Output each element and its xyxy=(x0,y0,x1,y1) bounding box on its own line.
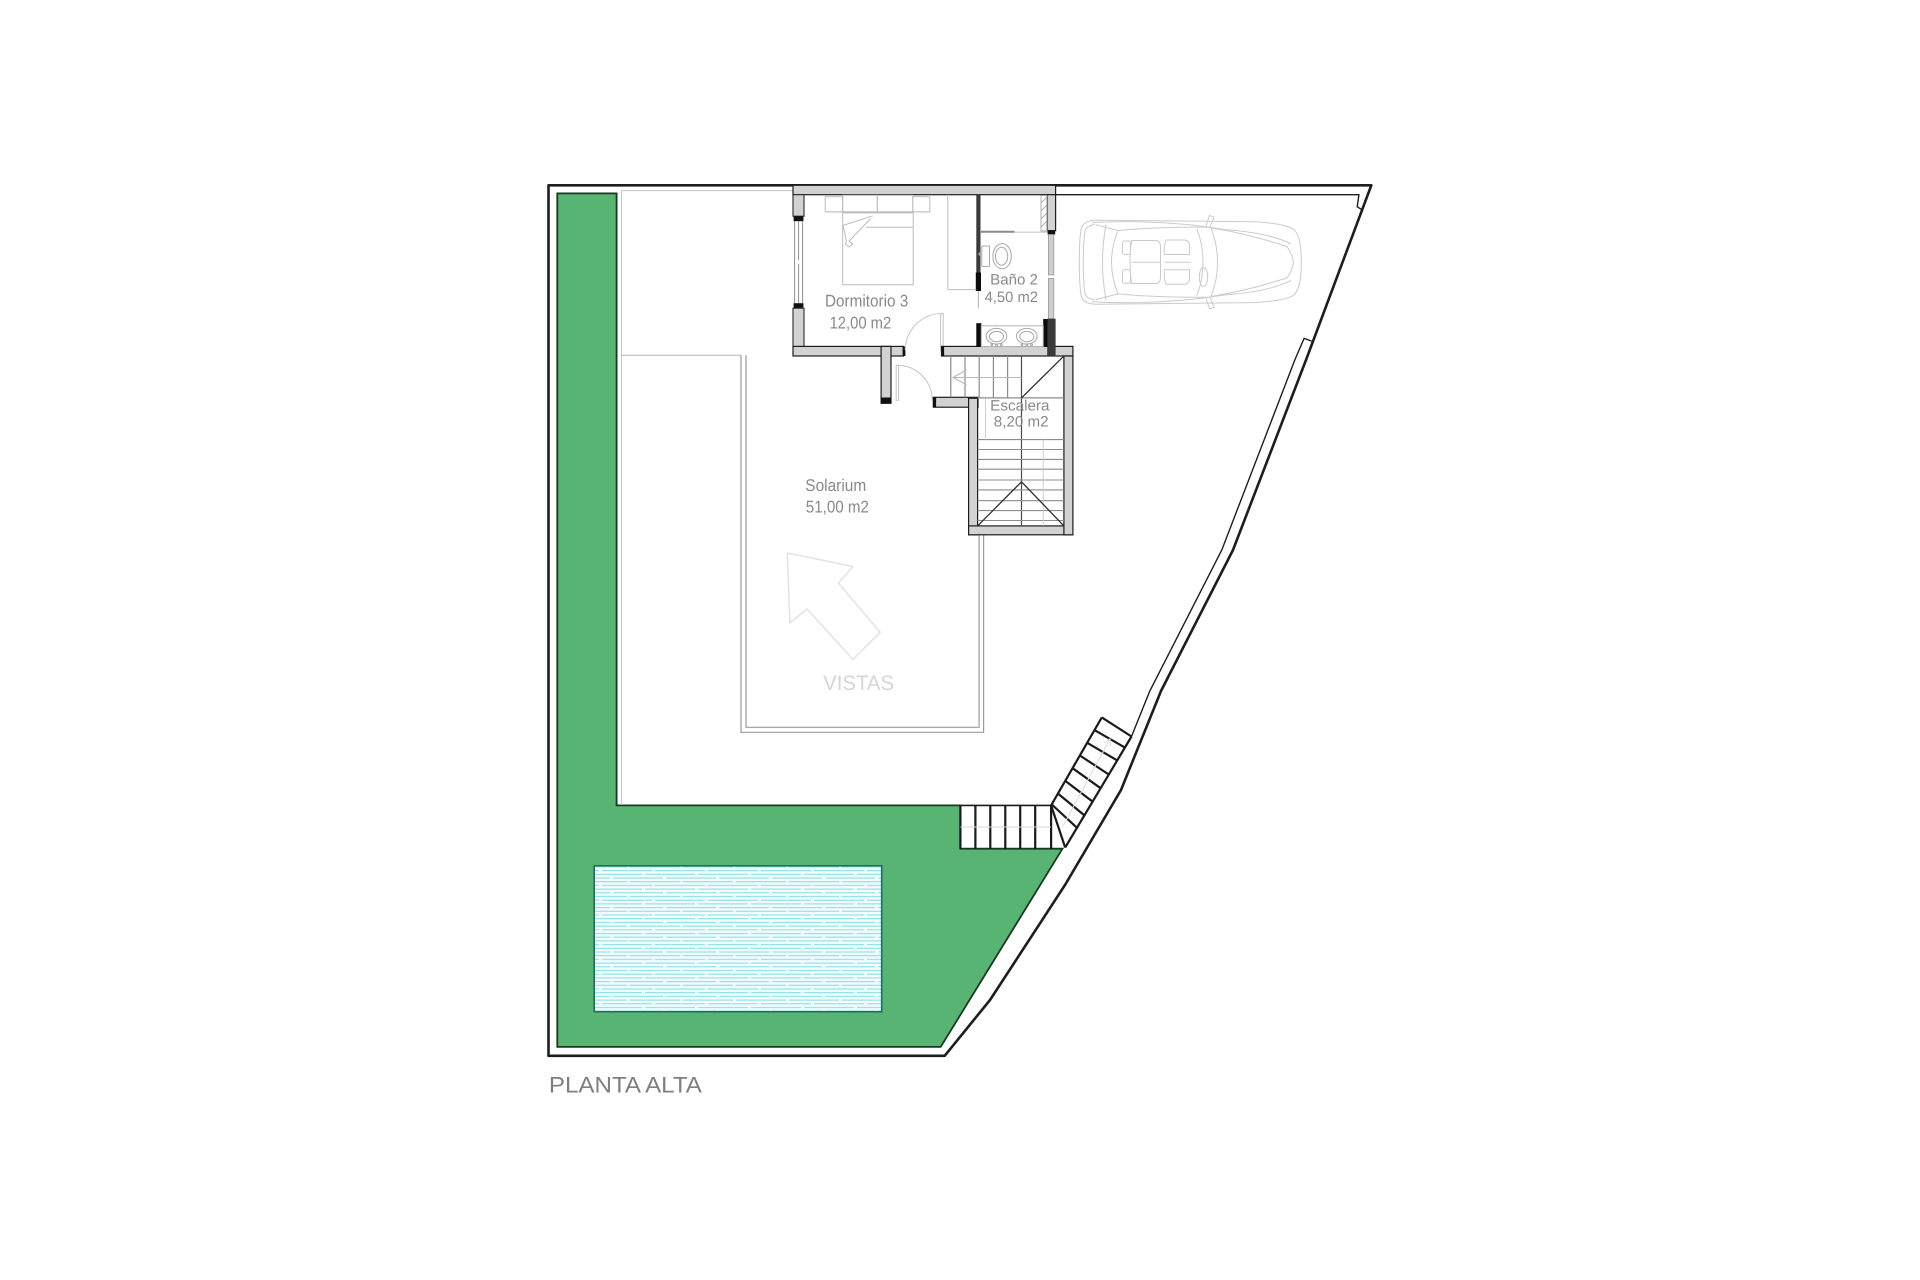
svg-text:51,00 m2: 51,00 m2 xyxy=(806,498,869,517)
svg-text:Escalera: Escalera xyxy=(990,397,1050,414)
svg-text:Solarium: Solarium xyxy=(805,476,866,495)
svg-text:Dormitorio 3: Dormitorio 3 xyxy=(825,292,908,311)
svg-text:4,50 m2: 4,50 m2 xyxy=(985,289,1038,306)
svg-text:PLANTA ALTA: PLANTA ALTA xyxy=(549,1072,702,1097)
svg-text:8,20 m2: 8,20 m2 xyxy=(994,413,1049,430)
svg-text:Baño 2: Baño 2 xyxy=(990,272,1038,289)
svg-text:12,00 m2: 12,00 m2 xyxy=(830,313,892,332)
svg-text:VISTAS: VISTAS xyxy=(823,672,894,695)
